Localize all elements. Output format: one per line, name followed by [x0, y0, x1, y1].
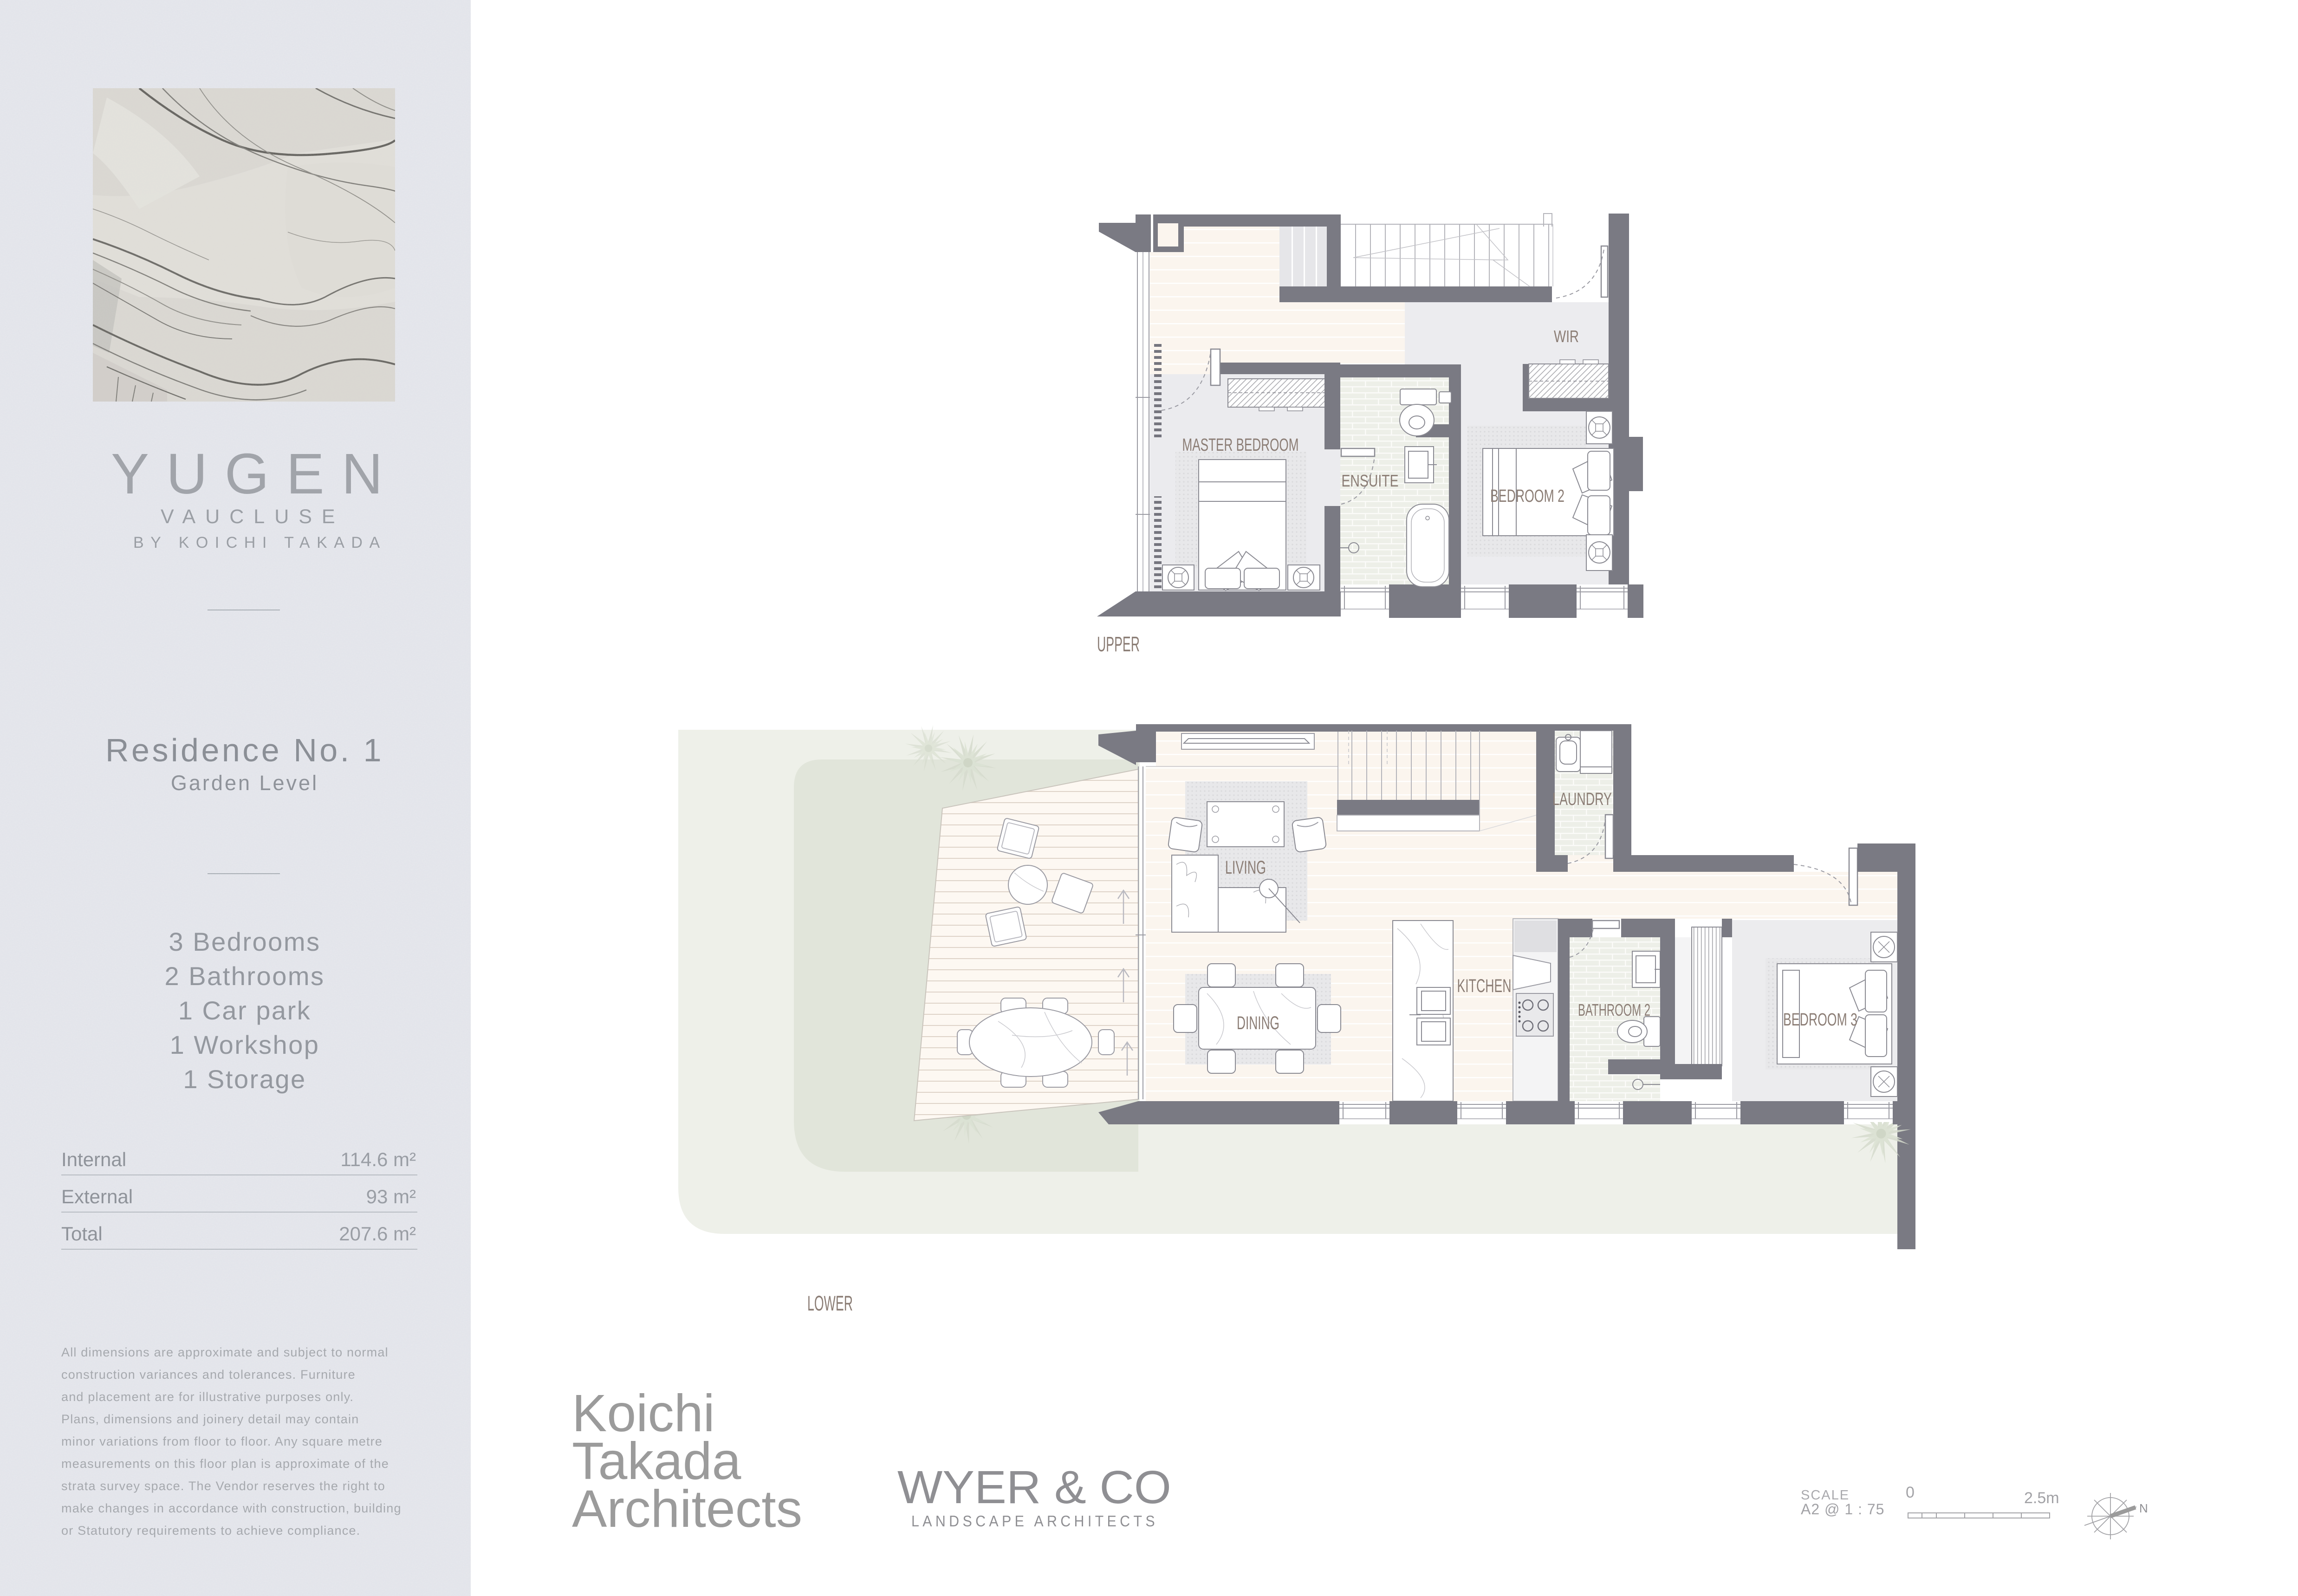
svg-text:BEDROOM 2: BEDROOM 2: [1490, 487, 1564, 506]
svg-text:measurements on this floor pla: measurements on this floor plan is appro…: [61, 1457, 389, 1471]
svg-text:WYER & CO: WYER & CO: [897, 1461, 1171, 1513]
svg-text:BY KOICHI TAKADA: BY KOICHI TAKADA: [133, 534, 387, 551]
svg-text:YUGEN: YUGEN: [111, 442, 400, 506]
svg-text:BATHROOM 2: BATHROOM 2: [1578, 1000, 1650, 1019]
svg-text:LIVING: LIVING: [1225, 857, 1266, 878]
svg-text:minor variations from floor to: minor variations from floor to floor. An…: [61, 1434, 383, 1448]
svg-text:Garden Level: Garden Level: [171, 771, 318, 795]
svg-text:and placement are for illustra: and placement are for illustrative purpo…: [61, 1390, 354, 1404]
svg-text:Total: Total: [61, 1223, 103, 1245]
svg-text:LANDSCAPE ARCHITECTS: LANDSCAPE ARCHITECTS: [911, 1512, 1158, 1530]
svg-text:1 Car park: 1 Car park: [178, 996, 311, 1025]
svg-text:strata survey space. The Vendo: strata survey space. The Vendor reserves…: [61, 1479, 385, 1493]
svg-text:MASTER BEDROOM: MASTER BEDROOM: [1182, 435, 1299, 455]
svg-text:All dimensions are approximate: All dimensions are approximate and subje…: [61, 1345, 389, 1359]
svg-text:External: External: [61, 1186, 133, 1207]
svg-text:Architects: Architects: [572, 1479, 802, 1538]
svg-text:UPPER: UPPER: [1097, 632, 1140, 656]
svg-text:ENSUITE: ENSUITE: [1342, 471, 1399, 490]
svg-text:Internal: Internal: [61, 1148, 126, 1170]
svg-text:207.6 m²: 207.6 m²: [339, 1223, 416, 1245]
svg-text:Residence No. 1: Residence No. 1: [105, 732, 384, 768]
svg-text:2 Bathrooms: 2 Bathrooms: [165, 961, 325, 991]
svg-text:114.6 m²: 114.6 m²: [340, 1148, 416, 1170]
svg-text:0: 0: [1906, 1484, 1915, 1501]
svg-text:VAUCLUSE: VAUCLUSE: [161, 506, 345, 528]
svg-text:Plans, dimensions and joinery: Plans, dimensions and joinery detail may…: [61, 1412, 359, 1426]
svg-text:1 Workshop: 1 Workshop: [170, 1030, 320, 1059]
svg-text:1 Storage: 1 Storage: [183, 1064, 306, 1094]
svg-text:WIR: WIR: [1554, 327, 1579, 346]
svg-text:LOWER: LOWER: [807, 1291, 853, 1315]
svg-text:A2 @ 1 : 75: A2 @ 1 : 75: [1801, 1501, 1884, 1518]
svg-text:2.5m: 2.5m: [2024, 1489, 2059, 1507]
svg-text:N: N: [2139, 1501, 2148, 1515]
svg-text:LAUNDRY: LAUNDRY: [1552, 790, 1612, 809]
svg-text:make changes in accordance wit: make changes in accordance with construc…: [61, 1501, 402, 1515]
svg-text:93 m²: 93 m²: [366, 1186, 416, 1207]
svg-text:DINING: DINING: [1237, 1013, 1279, 1033]
svg-text:3 Bedrooms: 3 Bedrooms: [169, 927, 321, 956]
svg-text:construction variances and tol: construction variances and tolerances. F…: [61, 1368, 356, 1382]
svg-text:BEDROOM 3: BEDROOM 3: [1783, 1010, 1857, 1030]
svg-text:KITCHEN: KITCHEN: [1457, 976, 1512, 996]
svg-text:or Statutory requirements to a: or Statutory requirements to achieve com…: [61, 1524, 360, 1538]
